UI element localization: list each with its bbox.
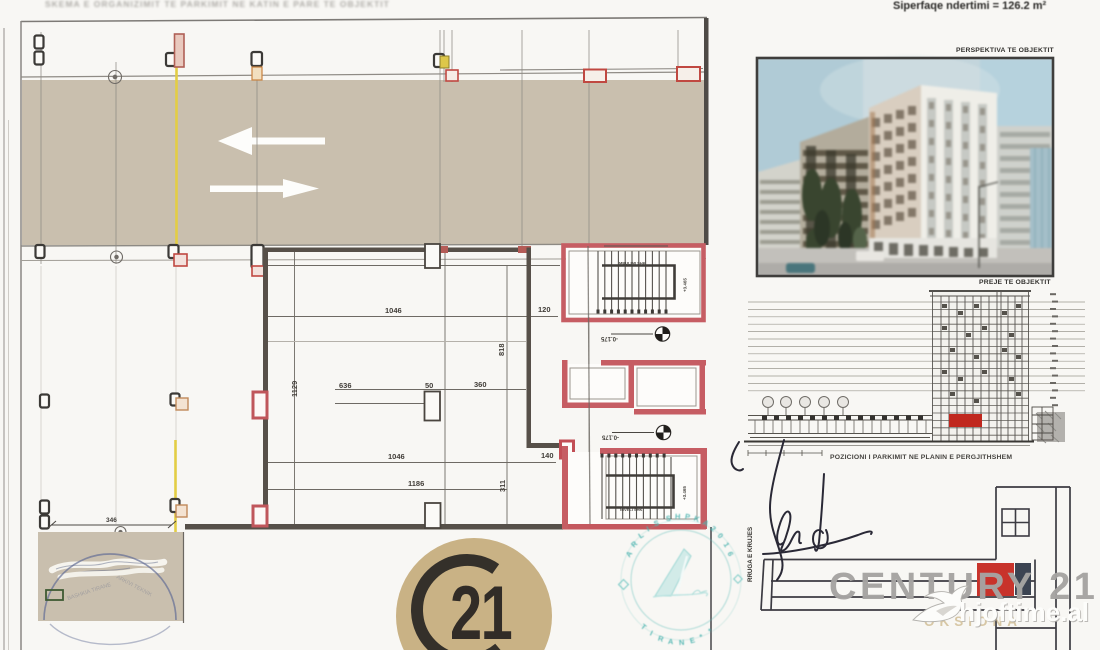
svg-text:120: 120 — [538, 305, 551, 314]
svg-text:+3.465: +3.465 — [682, 486, 687, 500]
svg-text:hjoftime.al: hjoftime.al — [959, 597, 1089, 627]
svg-text:636: 636 — [339, 381, 352, 390]
svg-text:S: S — [666, 514, 672, 523]
svg-text:-0.175: -0.175 — [601, 433, 619, 439]
svg-text:PERSPEKTIVA TE OBJEKTIT: PERSPEKTIVA TE OBJEKTIT — [956, 47, 1055, 54]
svg-text:818: 818 — [497, 343, 506, 356]
svg-text:360: 360 — [474, 380, 487, 389]
svg-text:311: 311 — [498, 480, 507, 492]
svg-text:21: 21 — [450, 571, 511, 650]
svg-text:1186: 1186 — [408, 479, 424, 488]
svg-text:1129: 1129 — [290, 381, 299, 397]
svg-text:1046: 1046 — [388, 452, 405, 461]
svg-text:SKEMA E ORGANIZIMIT TE PARKIMI: SKEMA E ORGANIZIMIT TE PARKIMIT NE KATIN… — [45, 0, 390, 9]
svg-text:+3.465: +3.465 — [683, 278, 688, 292]
svg-text:H: H — [675, 512, 681, 521]
svg-text:POZICIONI I PARKIMIT NE PLANIN: POZICIONI I PARKIMIT NE PLANIN E PERGJIT… — [830, 454, 1012, 461]
svg-text:N: N — [679, 638, 685, 647]
svg-text:NIVELI SHK: NIVELI SHK — [620, 507, 643, 512]
svg-text:346: 346 — [106, 517, 117, 524]
svg-text:140: 140 — [541, 451, 554, 460]
svg-text:1046: 1046 — [385, 306, 402, 315]
svg-text:MBULIMI SHK: MBULIMI SHK — [619, 261, 646, 266]
svg-text:-0.175: -0.175 — [600, 335, 618, 341]
svg-text:Siperfaqe ndertimi = 126.2 m²: Siperfaqe ndertimi = 126.2 m² — [893, 0, 1046, 12]
svg-text:PREJE TE OBJEKTIT: PREJE TE OBJEKTIT — [979, 279, 1051, 286]
svg-text:50: 50 — [425, 381, 433, 390]
svg-text:RRUGA E KRUJES: RRUGA E KRUJES — [747, 527, 754, 582]
